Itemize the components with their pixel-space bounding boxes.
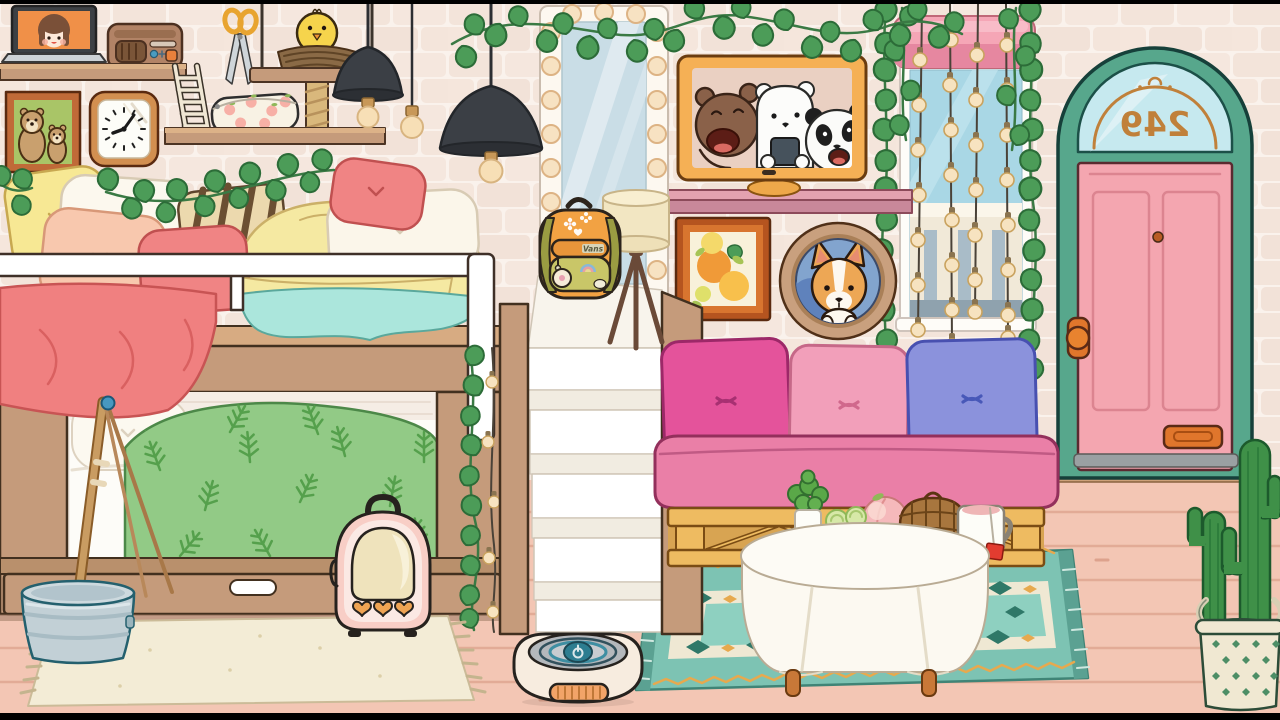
door-handle[interactable]	[1067, 318, 1089, 358]
letterbox-bottom	[0, 713, 1280, 720]
tablecloth	[741, 523, 989, 675]
table-leg	[922, 670, 936, 696]
door-slab[interactable]	[1078, 163, 1232, 470]
laptop[interactable]	[2, 6, 106, 62]
vacuum-power-button[interactable]	[564, 642, 592, 662]
robot-vacuum[interactable]	[514, 634, 642, 707]
tv[interactable]	[678, 56, 868, 196]
door-number: 249	[1120, 105, 1191, 145]
game-stage: 249	[0, 0, 1280, 720]
dog-porthole[interactable]	[780, 223, 896, 339]
door-mail-slot[interactable]	[1164, 426, 1222, 448]
couch-seat[interactable]	[655, 436, 1058, 508]
letterbox-top	[0, 0, 1280, 4]
wall-clock[interactable]	[90, 92, 158, 166]
scene-svg: 249	[0, 0, 1280, 720]
door-peephole	[1153, 232, 1163, 242]
cat-post	[306, 82, 328, 130]
drawer-handle[interactable]	[230, 580, 276, 595]
ice-bear	[756, 82, 814, 169]
bucket[interactable]	[22, 581, 134, 663]
arched-door[interactable]: 249	[1050, 48, 1260, 482]
tv-screen-bears	[692, 68, 868, 175]
table-leg	[786, 670, 800, 696]
stairs-left-stringer	[500, 304, 528, 634]
backpack-brand-label: Vans	[583, 245, 604, 254]
backpack[interactable]: Vans	[540, 200, 620, 299]
door-kick-plate	[1074, 454, 1238, 467]
family-portrait[interactable]	[6, 92, 80, 172]
